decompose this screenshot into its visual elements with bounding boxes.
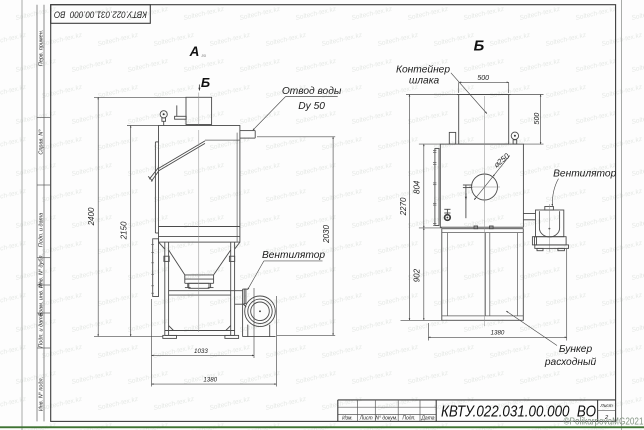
svg-text:КВТУ.022.031.00.000 ВО: КВТУ.022.031.00.000 ВО [54,10,147,20]
svg-text:Вентилятор: Вентилятор [553,168,616,179]
svg-text:2030: 2030 [322,225,331,244]
svg-text:Подп.: Подп. [402,416,415,422]
svg-text:Дата: Дата [420,416,434,422]
svg-text:Отвод воды: Отвод воды [282,86,342,97]
svg-text:расходный: расходный [544,357,597,368]
svg-text:Б: Б [201,75,210,90]
svg-text:Лист: Лист [599,403,612,409]
svg-text:©PolikarpovaMG2021: ©PolikarpovaMG2021 [564,415,644,427]
svg-text:Инв. N° подл.: Инв. N° подл. [38,377,44,411]
svg-text:2150: 2150 [119,221,128,240]
svg-text:Подп. и дата: Подп. и дата [38,213,44,247]
svg-text:902: 902 [413,268,422,282]
svg-text:го: го [202,53,207,58]
svg-text:Dy 50: Dy 50 [298,101,325,112]
svg-text:шлака: шлака [409,76,440,87]
svg-text:Вентилятор: Вентилятор [262,250,325,261]
svg-text:Справ. N°: Справ. N° [38,129,44,155]
svg-text:1033: 1033 [194,348,208,355]
svg-text:Лист: Лист [359,416,373,422]
svg-text:Перв. примен.: Перв. примен. [38,30,44,67]
svg-text:А: А [189,44,200,59]
svg-text:N° докум.: N° докум. [375,416,397,422]
svg-text:Контейнер: Контейнер [396,65,450,76]
svg-text:2400: 2400 [87,207,96,226]
svg-text:500: 500 [534,113,541,125]
svg-text:2270: 2270 [399,197,408,216]
svg-text:Изм.: Изм. [342,416,353,422]
svg-text:804: 804 [413,180,422,194]
svg-text:1380: 1380 [491,330,505,337]
svg-text:Подп. и дата: Подп. и дата [38,313,44,347]
svg-text:Бункер: Бункер [559,344,593,355]
svg-text:Взам. инв. N°: Взам. инв. N° [38,281,44,316]
svg-text:500: 500 [477,75,489,82]
svg-text:Б: Б [474,38,485,55]
svg-text:1380: 1380 [203,376,217,383]
